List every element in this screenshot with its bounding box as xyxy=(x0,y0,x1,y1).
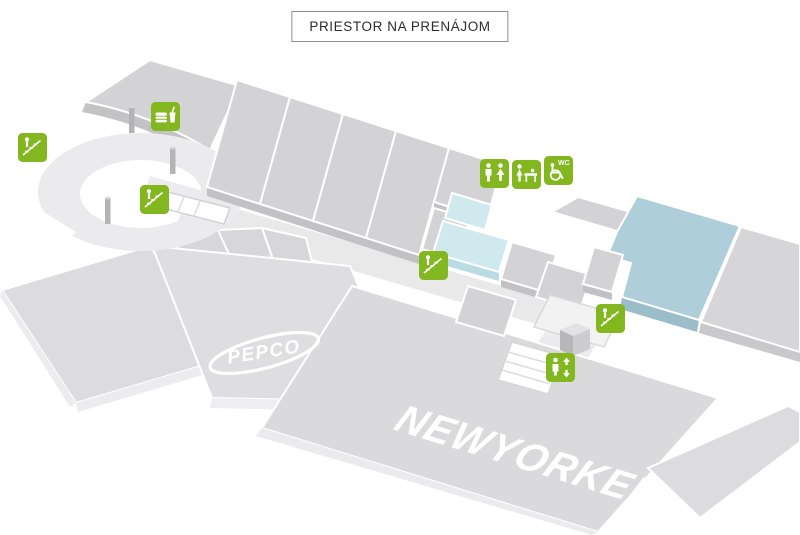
escalator-icon-1[interactable] xyxy=(18,133,47,162)
accessible-wc-icon[interactable]: WC xyxy=(544,156,573,185)
baby-changing-icon[interactable] xyxy=(512,160,541,189)
mall-map: PEPCO NEWYORKER xyxy=(0,0,800,535)
escalator-icon-4[interactable] xyxy=(596,304,625,333)
atrium-rotunda xyxy=(26,60,244,251)
store-unit[interactable] xyxy=(583,247,623,292)
mall-floorplan-page: PEPCO NEWYORKER xyxy=(0,0,800,535)
escalator-icon-3[interactable] xyxy=(419,251,448,280)
food-court-icon[interactable] xyxy=(151,102,180,131)
wc-icon[interactable] xyxy=(480,159,509,188)
elevator-icon[interactable] xyxy=(546,353,575,382)
escalator-icon-2[interactable] xyxy=(140,185,169,214)
page-title: PRIESTOR NA PRENÁJOM xyxy=(291,11,508,42)
